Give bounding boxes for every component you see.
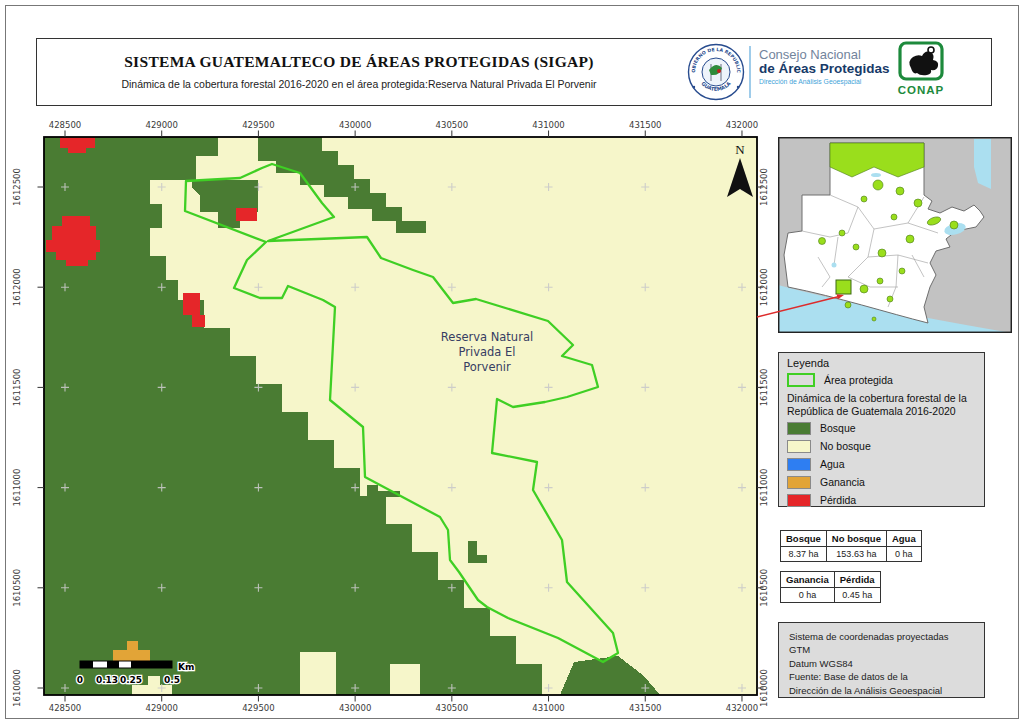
legend-class-label: Agua bbox=[820, 458, 845, 470]
x-axis-label-bottom: 429000 bbox=[145, 703, 177, 713]
x-axis-label-bottom: 428500 bbox=[49, 703, 81, 713]
x-axis-label-top: 430000 bbox=[339, 120, 371, 130]
stats-header: No bosque bbox=[826, 531, 886, 547]
legend: Leyenda Área protegida Dinámica de la co… bbox=[778, 352, 985, 507]
y-axis-label-left: 1611000 bbox=[12, 469, 22, 507]
legend-class-label: Bosque bbox=[820, 422, 856, 434]
legend-swatch bbox=[787, 476, 811, 489]
stats-value: 153.63 ha bbox=[826, 547, 886, 562]
legend-title: Leyenda bbox=[787, 357, 976, 369]
lake-atitlan bbox=[832, 263, 837, 268]
x-axis-label-bottom: 429500 bbox=[242, 703, 274, 713]
lake-peten-itza bbox=[871, 173, 881, 177]
y-axis-label-left: 1610500 bbox=[12, 569, 22, 607]
reserve-label-line2: Privada El bbox=[459, 345, 516, 359]
stats-header: Agua bbox=[886, 531, 921, 547]
scalebar-label: 0.5 bbox=[164, 675, 180, 685]
area-protegida-swatch bbox=[787, 373, 815, 387]
x-axis-label-bottom: 432000 bbox=[726, 703, 758, 713]
legend-item-p-rdida: Pérdida bbox=[787, 493, 976, 507]
x-axis-label-top: 429000 bbox=[145, 120, 177, 130]
area-stats-table-2: GananciaPérdida0 ha0.45 ha bbox=[780, 571, 881, 603]
x-axis-label-bottom: 431000 bbox=[532, 703, 564, 713]
legend-item-bosque: Bosque bbox=[787, 421, 976, 435]
legend-item-ganancia: Ganancia bbox=[787, 475, 976, 489]
stats-header: Ganancia bbox=[781, 572, 835, 588]
legend-swatch bbox=[787, 422, 811, 435]
coordinate-system-info-box: Sistema de coordenadas proyectadasGTMDat… bbox=[778, 622, 985, 698]
info-line: Datum WGS84 bbox=[789, 657, 974, 670]
info-line: GTM bbox=[789, 643, 974, 656]
x-axis-label-bottom: 431500 bbox=[629, 703, 661, 713]
x-axis-label-top: 431000 bbox=[532, 120, 564, 130]
reserve-label-line3: Porvenir bbox=[463, 360, 511, 374]
scalebar-unit-label: Km bbox=[178, 662, 194, 672]
legend-item-area-protegida: Área protegida bbox=[787, 372, 976, 387]
info-line: Dirección de la Análisis Geoespacial bbox=[789, 684, 974, 697]
scalebar-label: 0.25 bbox=[120, 675, 142, 685]
x-axis-label-bottom: 430000 bbox=[339, 703, 371, 713]
legend-swatch bbox=[787, 440, 811, 453]
y-axis-label-left: 1612000 bbox=[12, 268, 22, 306]
stats-value: 0 ha bbox=[886, 547, 921, 562]
legend-item-agua: Agua bbox=[787, 457, 976, 471]
x-axis-label-top: 431500 bbox=[629, 120, 661, 130]
info-line: Sistema de coordenadas proyectadas bbox=[789, 630, 974, 643]
stats-value: 0 ha bbox=[781, 588, 835, 603]
scalebar-label: 0.13 bbox=[96, 675, 118, 685]
legend-swatch bbox=[787, 494, 811, 507]
y-axis-label-left: 1611500 bbox=[12, 368, 22, 406]
x-axis-label-bottom: 430500 bbox=[436, 703, 468, 713]
stats-header: Bosque bbox=[781, 531, 827, 547]
legend-class-list: BosqueNo bosqueAguaGananciaPérdida bbox=[787, 421, 976, 507]
map-layout-page: SISTEMA GUATEMALTECO DE ÁREAS PROTEGIDAS… bbox=[0, 0, 1024, 724]
scalebar-label: 0 bbox=[77, 675, 83, 685]
legend-class-label: No bosque bbox=[820, 440, 871, 452]
y-axis-label-left: 1612500 bbox=[12, 168, 22, 206]
legend-dynamics-caption: Dinámica de la cobertura forestal de la … bbox=[787, 392, 976, 417]
north-label: N bbox=[735, 142, 745, 157]
area-protegida-label: Área protegida bbox=[824, 374, 893, 386]
legend-class-label: Ganancia bbox=[820, 476, 865, 488]
legend-swatch bbox=[787, 458, 811, 471]
legend-item-no-bosque: No bosque bbox=[787, 439, 976, 453]
stats-value: 8.37 ha bbox=[781, 547, 827, 562]
inset-locator-arrow bbox=[745, 283, 875, 328]
stats-header: Pérdida bbox=[834, 572, 880, 588]
stats-value: 0.45 ha bbox=[834, 588, 880, 603]
y-axis-label-left: 1610000 bbox=[12, 669, 22, 707]
x-axis-label-top: 432000 bbox=[726, 120, 758, 130]
x-axis-label-top: 430500 bbox=[436, 120, 468, 130]
info-line: Fuente: Base de datos de la bbox=[789, 670, 974, 683]
area-stats-table-1: BosqueNo bosqueAgua8.37 ha153.63 ha0 ha bbox=[780, 530, 922, 562]
legend-class-label: Pérdida bbox=[820, 494, 856, 506]
reserve-label-line1: Reserva Natural bbox=[441, 330, 533, 344]
x-axis-label-top: 429500 bbox=[242, 120, 274, 130]
x-axis-label-top: 428500 bbox=[49, 120, 81, 130]
